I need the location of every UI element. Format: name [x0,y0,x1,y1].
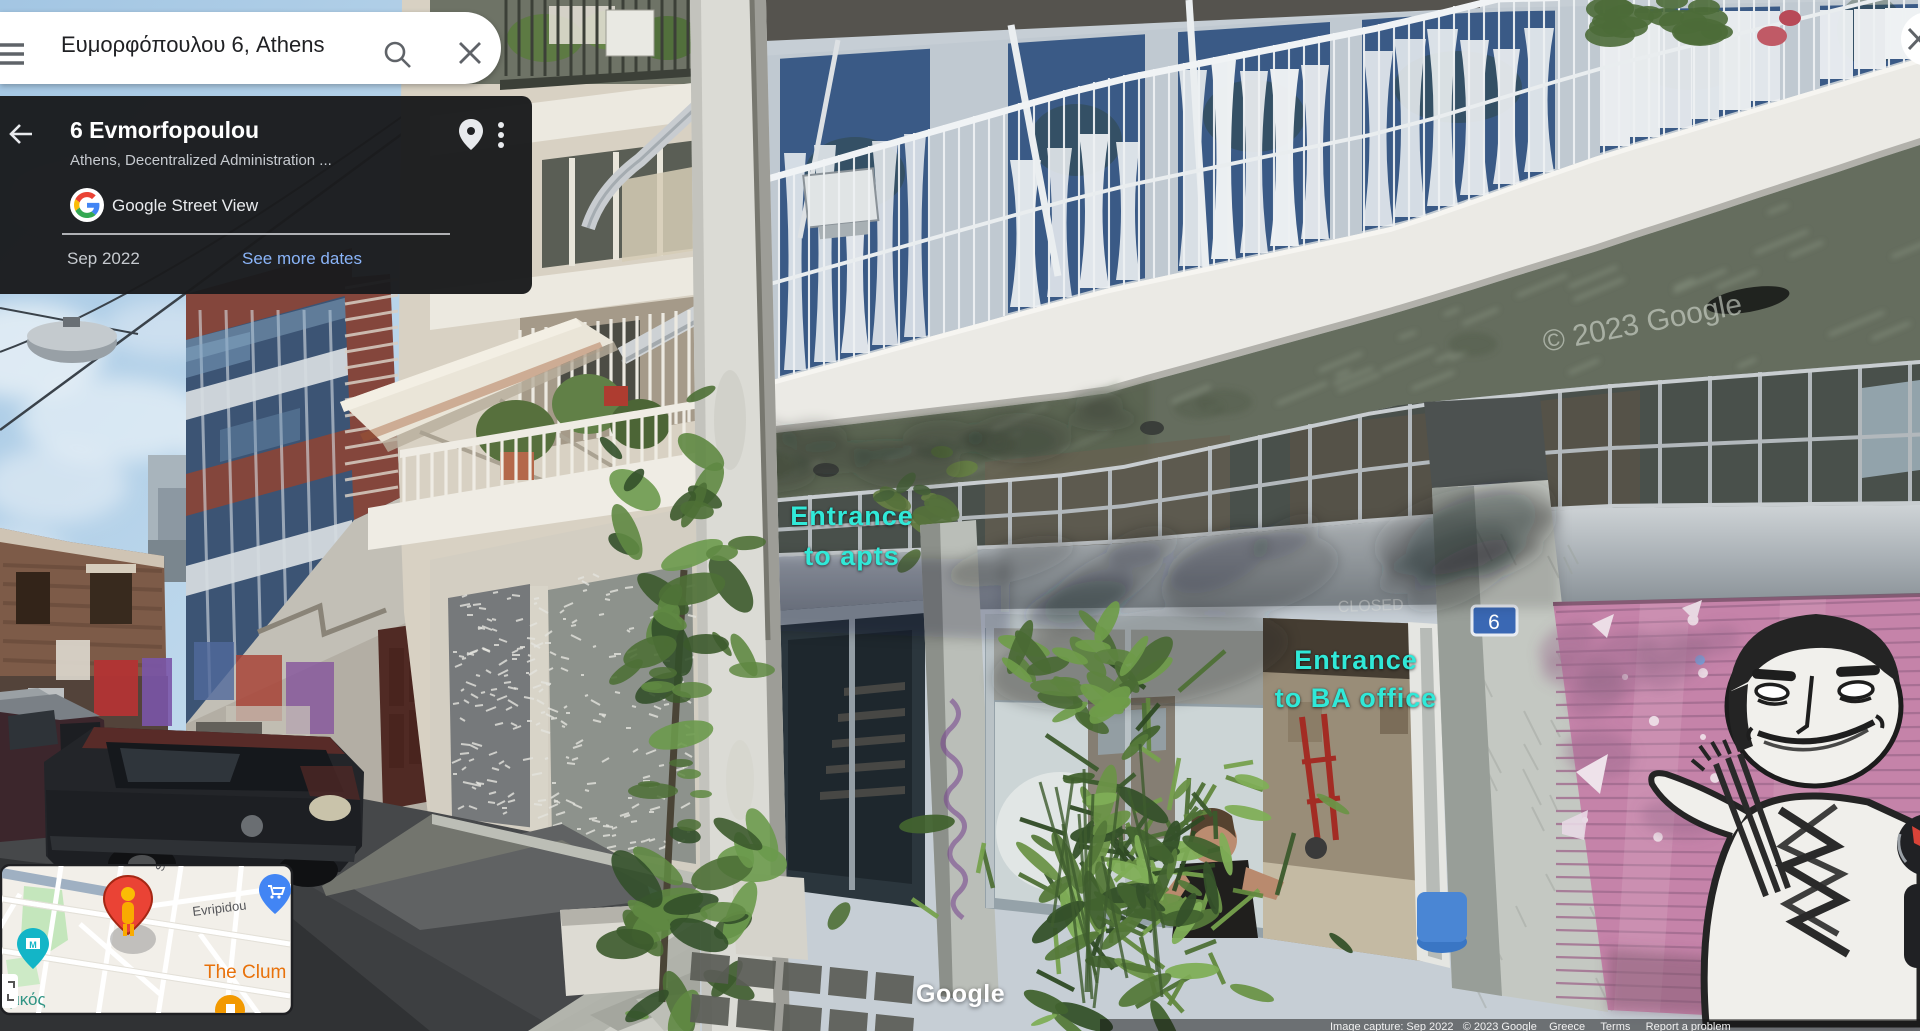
svg-text:Image capture: Sep 2022 © 20: Image capture: Sep 2022 © 2023 Google Gr… [1330,1021,1731,1031]
svg-text:The Clum: The Clum [204,962,286,983]
svg-text:M: M [29,940,37,950]
svg-text:6: 6 [1488,611,1500,634]
